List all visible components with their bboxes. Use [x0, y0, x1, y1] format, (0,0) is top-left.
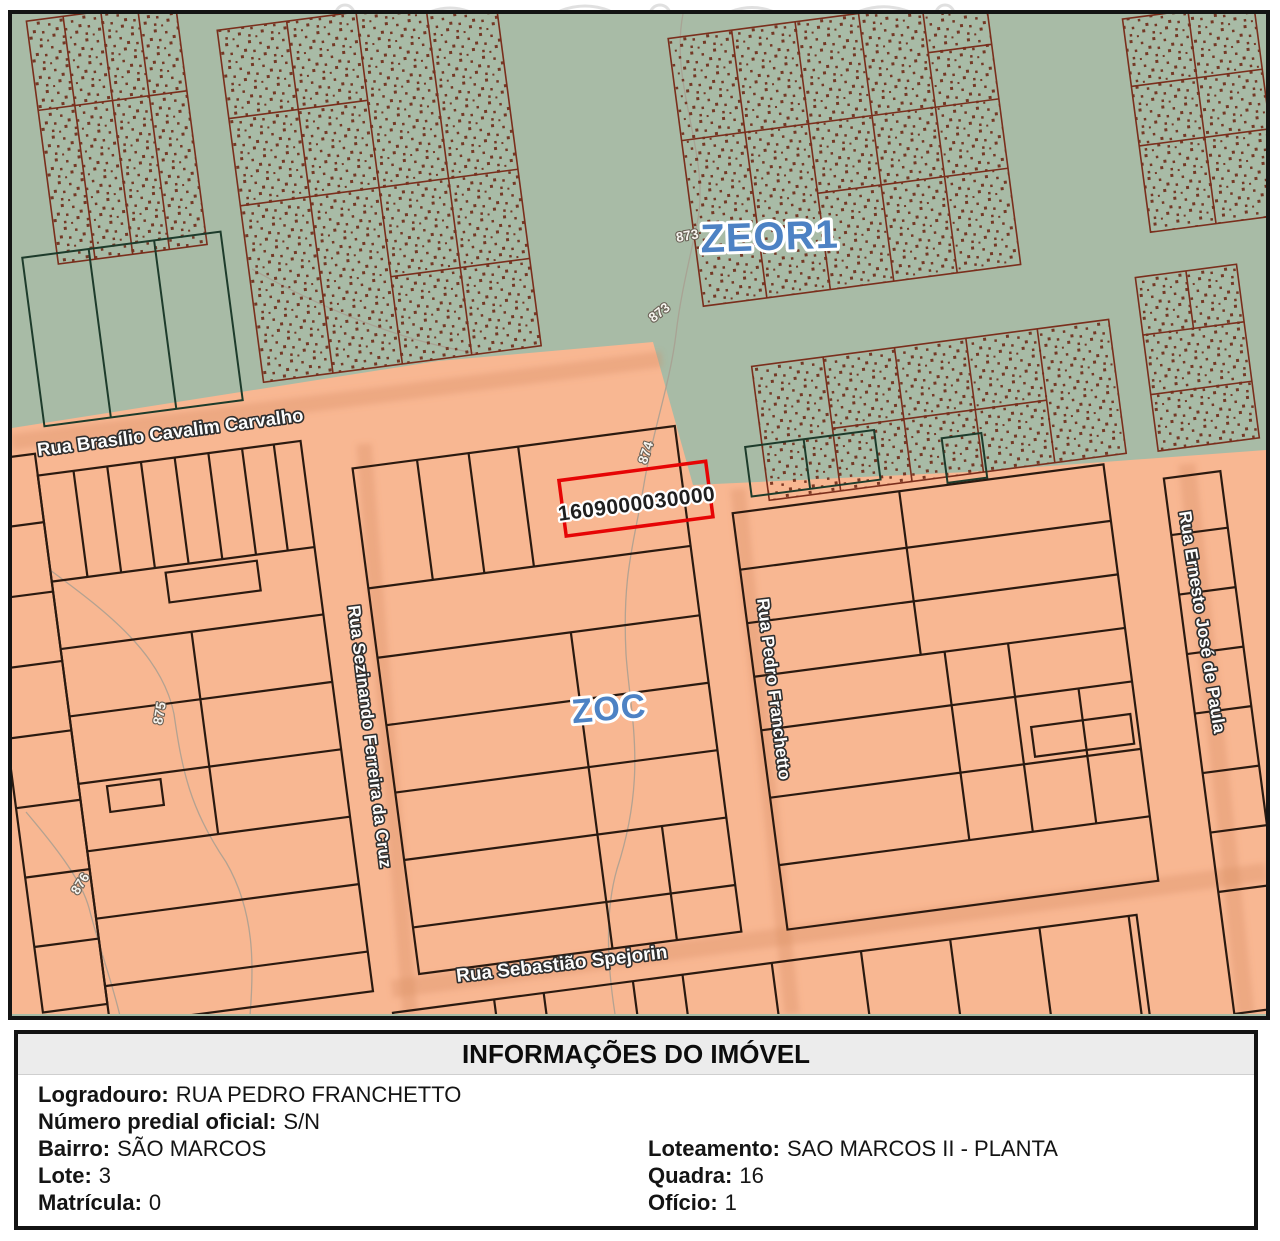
field-matricula: Matrícula:0 [38, 1189, 648, 1216]
info-panel-title: INFORMAÇÕES DO IMÓVEL [18, 1034, 1254, 1075]
zone-label-zeor1: ZEOR1 [700, 213, 840, 262]
map-canvas: 1609000030000 Rua Brasílio Cavalim Carva… [12, 14, 1266, 1014]
field-logradouro: Logradouro:RUA PEDRO FRANCHETTO [38, 1081, 648, 1108]
field-bairro: Bairro:SÃO MARCOS [38, 1135, 648, 1162]
info-panel-body: Logradouro:RUA PEDRO FRANCHETTO Número p… [18, 1075, 1254, 1216]
field-loteamento: Loteamento:SAO MARCOS II - PLANTA [648, 1135, 1254, 1162]
field-quadra-label: Quadra: [648, 1163, 732, 1188]
field-lote-value: 3 [99, 1163, 111, 1188]
cadastral-report-page: 1609000030000 Rua Brasílio Cavalim Carva… [0, 0, 1280, 1241]
info-panel: INFORMAÇÕES DO IMÓVEL Logradouro:RUA PED… [14, 1030, 1258, 1230]
field-bairro-value: SÃO MARCOS [117, 1136, 266, 1161]
field-oficio-label: Ofício: [648, 1190, 718, 1215]
field-lote-label: Lote: [38, 1163, 92, 1188]
field-bairro-label: Bairro: [38, 1136, 110, 1161]
field-numero-predial: Número predial oficial:S/N [38, 1108, 648, 1135]
field-logradouro-label: Logradouro: [38, 1082, 169, 1107]
zone-label-zoc: ZOC [570, 687, 648, 731]
field-oficio-value: 1 [725, 1190, 737, 1215]
field-matricula-label: Matrícula: [38, 1190, 142, 1215]
field-oficio: Ofício:1 [648, 1189, 1254, 1216]
field-numero-predial-value: S/N [283, 1109, 320, 1134]
field-logradouro-value: RUA PEDRO FRANCHETTO [176, 1082, 462, 1107]
field-loteamento-value: SAO MARCOS II - PLANTA [787, 1136, 1058, 1161]
field-matricula-value: 0 [149, 1190, 161, 1215]
field-numero-predial-label: Número predial oficial: [38, 1109, 276, 1134]
map-frame: 1609000030000 Rua Brasílio Cavalim Carva… [8, 10, 1270, 1020]
watermark-fragment [0, 0, 1280, 10]
field-loteamento-label: Loteamento: [648, 1136, 780, 1161]
field-quadra: Quadra:16 [648, 1162, 1254, 1189]
field-quadra-value: 16 [739, 1163, 763, 1188]
field-lote: Lote:3 [38, 1162, 648, 1189]
